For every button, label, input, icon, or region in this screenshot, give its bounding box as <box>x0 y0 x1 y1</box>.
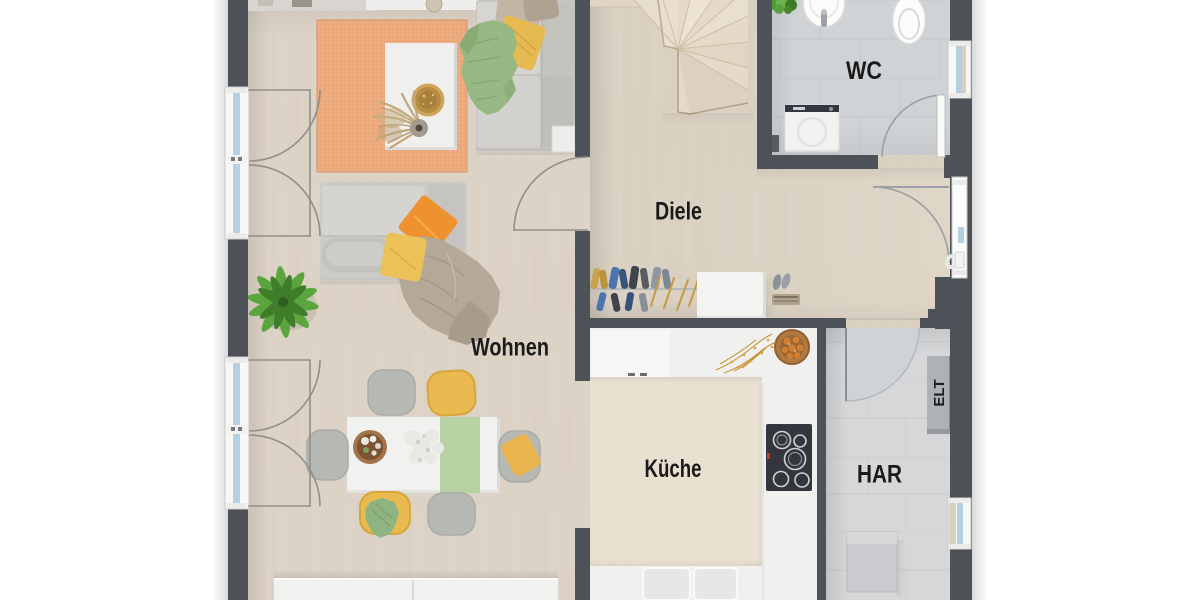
svg-text:Küche: Küche <box>645 455 702 483</box>
svg-text:HAR: HAR <box>857 461 902 489</box>
svg-text:Wohnen: Wohnen <box>471 334 549 362</box>
svg-text:ELT: ELT <box>931 379 948 406</box>
svg-text:WC: WC <box>846 57 882 85</box>
svg-text:Diele: Diele <box>655 198 702 226</box>
